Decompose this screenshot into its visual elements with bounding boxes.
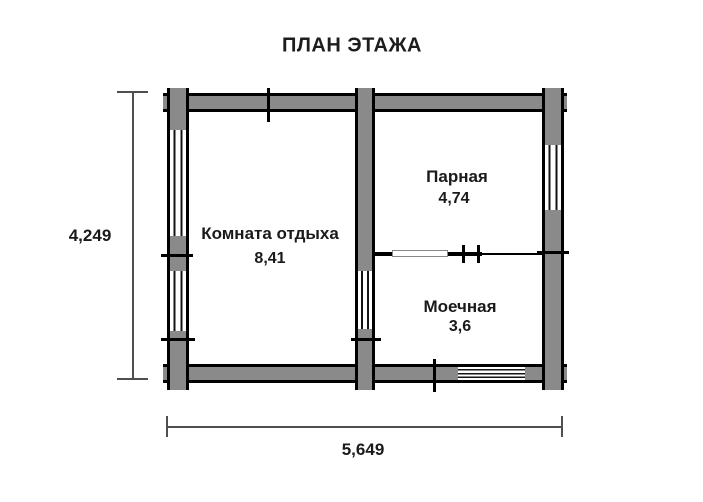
floor-plan: ПЛАН ЭТАЖА 4,249 5,649 Комната отдыха 8,… [0, 0, 703, 502]
window-right [545, 145, 561, 210]
floor-plan-title: ПЛАН ЭТАЖА [282, 35, 422, 58]
interior-wall-horizontal-thin [482, 253, 542, 255]
dimension-tick-width-right [561, 416, 563, 437]
dimension-tick-width-left [166, 416, 168, 437]
room-name-steam-room: Парная [426, 167, 488, 187]
room-area-rest-room: 8,41 [254, 250, 285, 268]
dimension-tick-height-top [117, 91, 148, 93]
window-bottom [458, 367, 525, 380]
dimension-label-width: 5,649 [342, 440, 385, 460]
interior-door-opening [358, 271, 372, 329]
door-leaf [392, 250, 448, 257]
dimension-tick-height-bottom [117, 378, 148, 380]
door-jamb-tick-right [477, 245, 480, 263]
window-left-lower [170, 271, 186, 331]
window-left-upper [170, 130, 186, 236]
door-jamb-tick-left [462, 245, 465, 263]
log-joint-tick-bottom [433, 359, 436, 392]
room-area-washing-room: 3,6 [449, 318, 471, 336]
room-area-steam-room: 4,74 [438, 190, 469, 208]
interior-wall-vertical [355, 88, 375, 390]
exterior-wall-right [542, 88, 564, 390]
room-name-rest-room: Комната отдыха [201, 224, 339, 244]
dimension-line-height [132, 92, 134, 380]
room-name-washing-room: Моечная [423, 297, 496, 317]
log-joint-tick-interior-lower [351, 338, 381, 341]
log-joint-tick-left-lower [161, 338, 195, 341]
dimension-line-width [167, 426, 563, 428]
log-joint-tick-left-middle [161, 254, 193, 257]
log-joint-tick-top [267, 88, 270, 122]
dimension-label-height: 4,249 [69, 226, 112, 246]
